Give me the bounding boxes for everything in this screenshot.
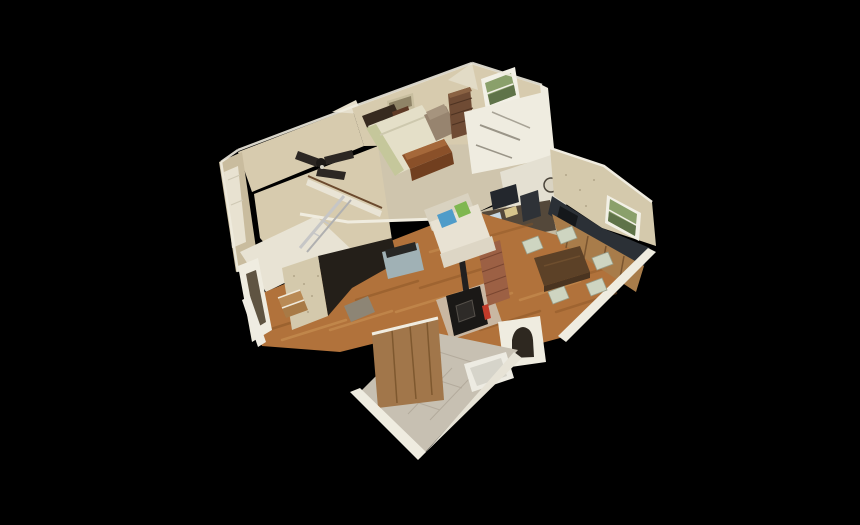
bathroom-closet [372,318,444,408]
viewer-canvas[interactable] [0,0,860,525]
dollhouse-viewport [0,0,860,525]
